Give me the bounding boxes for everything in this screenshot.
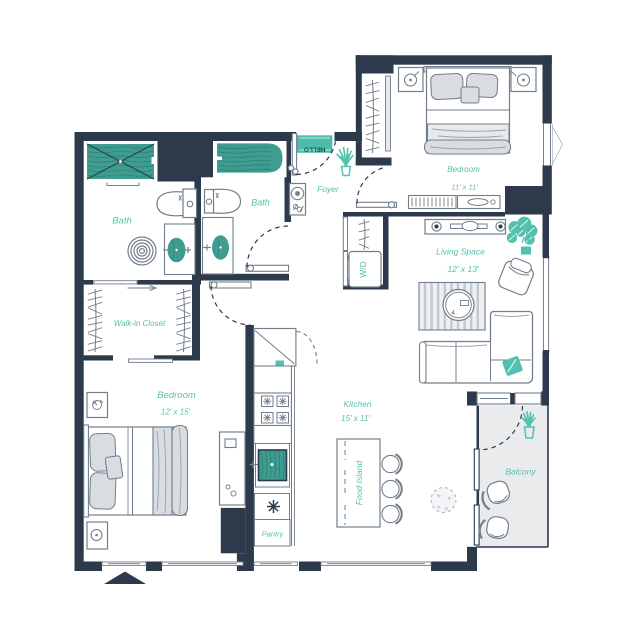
svg-text:Balcony: Balcony — [505, 467, 536, 477]
svg-text:Bath: Bath — [251, 198, 270, 208]
svg-text:Bedroom: Bedroom — [157, 390, 196, 401]
svg-text:Kitchen: Kitchen — [343, 399, 372, 409]
svg-text:Foyer: Foyer — [317, 184, 340, 194]
svg-text:W/D: W/D — [358, 261, 368, 278]
svg-text:15′ x 11′: 15′ x 11′ — [341, 414, 370, 423]
svg-text:Walk-in Closet: Walk-in Closet — [114, 319, 166, 328]
svg-text:12′ x 13′: 12′ x 13′ — [447, 264, 478, 274]
svg-text:12′ x 15′: 12′ x 15′ — [161, 408, 191, 417]
svg-text:11′ x 11′: 11′ x 11′ — [451, 183, 478, 192]
svg-text:Pantry: Pantry — [262, 530, 285, 539]
svg-text:HELLO: HELLO — [304, 145, 326, 152]
svg-text:Living Space: Living Space — [436, 247, 485, 257]
svg-text:Bedroom: Bedroom — [447, 165, 480, 174]
svg-text:Bath: Bath — [112, 216, 132, 227]
svg-text:Food Island: Food Island — [354, 461, 364, 506]
